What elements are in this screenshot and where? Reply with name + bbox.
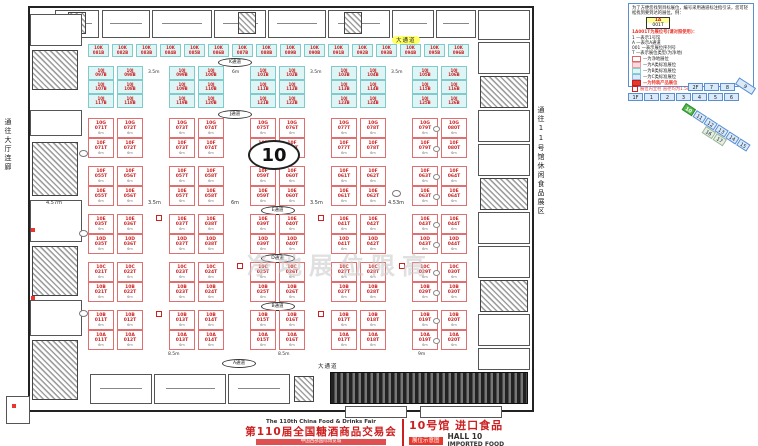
booth-10a015t: 10A015T6m [250,330,276,350]
booth-10d044t: 10D044T6m [441,234,467,254]
booth-10j125b: 10J125B [412,94,438,108]
minimap-hall-8: 8 [720,83,735,91]
booth-10e062t: 10E062T6m [360,186,386,206]
booth-10k091b: 10K091B [328,44,349,57]
structure-room [30,110,82,136]
structure-room [478,212,530,244]
booth-10b029t: 10B029T6m [412,282,438,302]
structure-room [478,144,530,176]
booth-10b024t: 10B024T6m [198,282,224,302]
booth-10k096b: 10K096B [448,44,469,57]
booth-10b017t: 10B017T6m [331,310,357,330]
booth-10d037t: 10D037T6m [169,234,195,254]
booth-10j102b: 10J102B [279,66,305,80]
booth-10g078t: 10G078T6m [360,118,386,138]
structure-room [102,10,150,38]
booth-10e057t: 10E057T6m [169,186,195,206]
net-booth-row: 10G071T6m10G072T6m10G073T6m10G074T6m10G0… [88,118,467,138]
structure-room [6,396,30,424]
aisle-dim: 3.5m [310,200,323,206]
minimap-hall-strip: 101112131415 [682,103,752,152]
main-aisle-label-top: 大通道 [392,36,420,44]
stairs [32,246,78,296]
booth-10f062t: 10F062T6m [360,166,386,186]
booth-10e036t: 10E036T6m [117,214,143,234]
booth-10f058t: 10F058T6m [198,166,224,186]
pillar-ellipse [79,230,88,237]
aisle-row: B通道 [88,302,467,310]
booth-10e038t: 10E038T6m [198,214,224,234]
booth-10f078t: 10F078T6m [360,138,386,158]
booth-10c022t: 10C022T6m [117,262,143,282]
booth-10j105b: 10J105B [412,66,438,80]
booth-10c021t: 10C021T6m [88,262,114,282]
booth-10g079t: 10G079T6m [412,118,438,138]
booth-10c026t: 10C026T6m [279,262,305,282]
legend-color-key: —为净地展位—为A类标准展位—为B类标准展位—为C类标准展位 [632,56,750,80]
hall-title-cn: 10号馆 进口食品 [409,420,504,432]
booth-10e039t: 10E039T6m [250,214,276,234]
booth-10b023t: 10B023T6m [169,282,195,302]
legend-example-booth: 1A 001T [646,17,670,29]
aisle-dim: 6m [232,70,239,75]
booth-10f057t: 10F057T6m [169,166,195,186]
pillar-marker [237,263,243,269]
booth-10b028t: 10B028T6m [360,282,386,302]
booth-10g077t: 10G077T6m [331,118,357,138]
fair-title-en: The 110th China Food & Drinks Fair [245,419,397,426]
booth-10e042t: 10E042T6m [360,214,386,234]
booth-10k089b: 10K089B [280,44,301,57]
booth-10a017t: 10A017T6m [331,330,357,350]
net-booth-row: 10B021T6m10B022T6m10B023T6m10B024T6m10B0… [88,282,467,302]
aisle-dim: 8.5m [168,352,180,357]
booth-10j123b: 10J123B [331,94,357,108]
structure-room [228,374,290,404]
standard-booth-block: 10J097B10J098B10J099B10J100B10J101B10J10… [88,66,467,108]
hall-subtitle-en: IMPORTED FOOD [448,441,505,446]
corridor-label-left: 通往大厅连廊 [3,118,13,172]
structure-room [478,110,530,142]
booth-10d042t: 10D042T6m [360,234,386,254]
structure-room [420,406,502,418]
booth-10b013t: 10B013T6m [169,310,195,330]
booth-10b022t: 10B022T6m [117,282,143,302]
aisle-a: A通道 [222,359,256,368]
booth-10c029t: 10C029T6m [412,262,438,282]
structure-room [30,300,82,336]
hall-number: 10 [248,140,300,170]
booth-10d035t: 10D035T6m [88,234,114,254]
minimap-hall-5: 5 [708,93,723,101]
booth-10b025t: 10B025T6m [250,282,276,302]
booth-10j112b: 10J112B [279,80,305,94]
pillar-marker [318,311,324,317]
booth-10k095b: 10K095B [424,44,445,57]
booth-10c023t: 10C023T6m [169,262,195,282]
layout-badge: 展位示意图 [409,437,443,445]
booth-10f074t: 10F074T6m [198,138,224,158]
booth-10j120b: 10J120B [198,94,224,108]
booth-10b015t: 10B015T6m [250,310,276,330]
booth-10j114b: 10J114B [360,80,386,94]
booth-10j115b: 10J115B [412,80,438,94]
structure-room [90,374,152,404]
booth-10e035t: 10E035T6m [88,214,114,234]
booth-10j121b: 10J121B [250,94,276,108]
minimap-hall-2: 2 [660,93,675,101]
booth-10a014t: 10A014T6m [198,330,224,350]
booth-10k085b: 10K085B [184,44,205,57]
standard-booth-row: 10K081B10K082B10K083B10K084B10K085B10K08… [88,44,469,57]
booth-10e059t: 10E059T6m [250,186,276,206]
booth-10d039t: 10D039T6m [250,234,276,254]
structure-room [478,42,530,74]
booth-10c030t: 10C030T6m [441,262,467,282]
booth-10j111b: 10J111B [250,80,276,94]
booth-10e063t: 10E063T6m [412,186,438,206]
aisle-dim: 3.5m [148,200,161,206]
booth-10k083b: 10K083B [136,44,157,57]
booth-10b021t: 10B021T6m [88,282,114,302]
minimap-hall-2f: 2F [688,83,703,91]
aisle-dim: 3.5m [310,70,322,75]
legend-intro: 为了方便您找到目标展位，编号采用通道标注指引法，您可轻松找到要到达的展位。例： [632,6,750,16]
fair-title-cn: 第110届全国糖酒商品交易会 [245,426,397,438]
stairs [480,280,528,312]
structure-room [30,14,82,46]
aisle-dim: 3.5m [148,70,160,75]
booth-10a020t: 10A020T6m [441,330,467,350]
booth-10e037t: 10E037T6m [169,214,195,234]
booth-10j110b: 10J110B [198,80,224,94]
booth-10c028t: 10C028T6m [360,262,386,282]
minimap-hall-15: 15 [736,138,750,151]
aisle-dim: 4.57m [46,200,62,206]
aisle-dim: 6m [231,200,239,206]
structure-room [478,246,530,278]
hall-title-en: HALL 10 [448,433,505,441]
net-booth-row: 10D035T6m10D036T6m10D037T6m10D038T6m10D0… [88,234,467,254]
booth-10e055t: 10E055T6m [88,186,114,206]
minimap-hall-6: 6 [724,93,739,101]
stairs [480,178,528,210]
booth-10k088b: 10K088B [256,44,277,57]
standard-booth-block-row: 10J107B10J108B10J109B10J110B10J111B10J11… [88,80,467,94]
booth-10c024t: 10C024T6m [198,262,224,282]
title-block: The 110th China Food & Drinks Fair 第110届… [245,419,504,446]
booth-10j109b: 10J109B [169,80,195,94]
minimap-floor2: 2F78 [688,83,736,91]
booth-10f073t: 10F073T6m [169,138,195,158]
stairs [344,12,362,34]
pillar-marker [156,311,162,317]
booth-10b019t: 10B019T6m [412,310,438,330]
aisle-dim: 9m [418,352,425,357]
net-booth-row: 10A011T6m10A012T6m10A013T6m10A014T6m10A0… [88,330,467,350]
structure-room [436,10,476,38]
net-booth-row: 10E035T6m10E036T6m10E037T6m10E038T6m10E0… [88,214,467,234]
booth-10f056t: 10F056T6m [117,166,143,186]
minimap-hall-1: 1 [644,93,659,101]
booth-10d043t: 10D043T6m [412,234,438,254]
booth-10j097b: 10J097B [88,66,114,80]
fire-point-marker [31,228,35,232]
booth-10j099b: 10J099B [169,66,195,80]
booth-10f055t: 10F055T6m [88,166,114,186]
booth-10f072t: 10F072T6m [117,138,143,158]
booth-10k084b: 10K084B [160,44,181,57]
booth-10j106b: 10J106B [441,66,467,80]
booth-10j119b: 10J119B [169,94,195,108]
booth-10g080t: 10G080T6m [441,118,467,138]
stairs [32,50,78,90]
booth-10a012t: 10A012T6m [117,330,143,350]
structure-room [268,10,326,38]
booth-10e040t: 10E040T6m [279,214,305,234]
structure-room [154,374,226,404]
standard-booth-block-row: 10J097B10J098B10J099B10J100B10J101B10J10… [88,66,467,80]
main-aisle-label-bottom: 大通道 [318,362,338,370]
booth-10j118b: 10J118B [117,94,143,108]
booth-10g073t: 10G073T6m [169,118,195,138]
loading-dock [330,372,528,404]
booth-10e064t: 10E064T6m [441,186,467,206]
booth-10j104b: 10J104B [360,66,386,80]
legend-example-bottom: 001T [647,23,669,28]
booth-10j098b: 10J098B [117,66,143,80]
structure-room [478,10,530,40]
booth-10b014t: 10B014T6m [198,310,224,330]
booth-10k081b: 10K081B [88,44,109,57]
net-booth-row: 10C021T6m10C022T6m10C023T6m10C024T6m10C0… [88,262,467,282]
booth-10k082b: 10K082B [112,44,133,57]
booth-10j107b: 10J107B [88,80,114,94]
floor-plan-page: 通往大厅连廊 通往11号馆休闲食品展区 大通道 大通道 10K081B10K08… [0,0,758,446]
booth-10j124b: 10J124B [360,94,386,108]
aisle-row: D通道 [88,254,467,262]
fair-title: The 110th China Food & Drinks Fair 第110届… [245,419,397,446]
minimap-hall-3: 3 [676,93,691,101]
booth-10e061t: 10E061T6m [331,186,357,206]
aisle-dim: 8.5m [278,352,290,357]
booth-10j122b: 10J122B [279,94,305,108]
booth-10j108b: 10J108B [117,80,143,94]
booth-10f071t: 10F071T6m [88,138,114,158]
booth-10f061t: 10F061T6m [331,166,357,186]
stairs [32,340,78,400]
structure-room [345,406,407,418]
aisle-dim: 4.53m [388,200,404,206]
booth-10d038t: 10D038T6m [198,234,224,254]
booth-10c027t: 10C027T6m [331,262,357,282]
booth-10k086b: 10K086B [208,44,229,57]
pillar-marker [318,215,324,221]
booth-10a019t: 10A019T6m [412,330,438,350]
stairs [238,12,256,34]
booth-10b012t: 10B012T6m [117,310,143,330]
legend-items: 1 —表示1号馆A —表示A通道001 —表示展位序列号T —表示展位类型(为净… [632,36,750,57]
booth-10j117b: 10J117B [88,94,114,108]
booth-10e044t: 10E044T6m [441,214,467,234]
booth-10k093b: 10K093B [376,44,397,57]
structure-room [392,10,434,38]
booth-10k087b: 10K087B [232,44,253,57]
minimap-hall-1f: 1F [628,93,643,101]
booth-10a016t: 10A016T6m [279,330,305,350]
booth-10e060t: 10E060T6m [279,186,305,206]
booth-10c025t: 10C025T6m [250,262,276,282]
structure-room [478,348,530,370]
pillar-marker [399,263,405,269]
minimap-floor1: 1F123456 [628,93,740,101]
booth-10j113b: 10J113B [331,80,357,94]
booth-10g071t: 10G071T6m [88,118,114,138]
pillar-ellipse [79,310,88,317]
booth-10j100b: 10J100B [198,66,224,80]
booth-10d040t: 10D040T6m [279,234,305,254]
booth-10j103b: 10J103B [331,66,357,80]
booth-10j101b: 10J101B [250,66,276,80]
booth-10b011t: 10B011T6m [88,310,114,330]
booth-10d036t: 10D036T6m [117,234,143,254]
pillar-swatch [632,86,638,92]
aisle-row: E通道 [88,206,467,214]
booth-10k090b: 10K090B [304,44,325,57]
booth-10g075t: 10G075T6m [250,118,276,138]
structure-room [30,200,82,242]
minimap-hall-7: 7 [704,83,719,91]
pillar-ellipse [392,190,401,197]
structure-room [152,10,212,38]
hall-title: 10号馆 进口食品 展位示意图 HALL 10 IMPORTED FOOD [409,419,504,446]
booth-10j126b: 10J126B [441,94,467,108]
aisle-dim: 3.5m [391,70,403,75]
fair-venue: 中国西部国际博览城 [256,439,386,445]
booth-10b027t: 10B027T6m [331,282,357,302]
minimap-hall-4: 4 [692,93,707,101]
booth-10e041t: 10E041T6m [331,214,357,234]
stairs [480,76,528,108]
booth-10a018t: 10A018T6m [360,330,386,350]
booth-10b016t: 10B016T6m [279,310,305,330]
booth-10k092b: 10K092B [352,44,373,57]
booth-10b020t: 10B020T6m [441,310,467,330]
booth-10f077t: 10F077T6m [331,138,357,158]
stairs [32,142,78,196]
legend: 为了方便您找到目标展位，编号采用通道标注指引法，您可轻松找到要到达的展位。例： … [628,3,754,87]
title-divider [402,419,404,446]
fire-point-marker [12,404,16,408]
booth-10f079t: 10F079T6m [412,138,438,158]
booth-10b026t: 10B026T6m [279,282,305,302]
stairs [294,376,314,402]
net-booth-row: 10B011T6m10B012T6m10B013T6m10B014T6m10B0… [88,310,467,330]
corridor-label-right: 通往11号馆休闲食品展区 [536,106,546,216]
booth-10f080t: 10F080T6m [441,138,467,158]
booth-10d041t: 10D041T6m [331,234,357,254]
booth-10g076t: 10G076T6m [279,118,305,138]
structure-room [478,314,530,346]
booth-10e058t: 10E058T6m [198,186,224,206]
booth-10k094b: 10K094B [400,44,421,57]
booth-10a013t: 10A013T6m [169,330,195,350]
booth-10g072t: 10G072T6m [117,118,143,138]
net-booth-row: 10E055T6m10E056T6m10E057T6m10E058T6m10E0… [88,186,467,206]
booth-10e043t: 10E043T6m [412,214,438,234]
booth-10b030t: 10B030T6m [441,282,467,302]
booth-10b018t: 10B018T6m [360,310,386,330]
booth-10j116b: 10J116B [441,80,467,94]
standard-booth-block-row: 10J117B10J118B10J119B10J120B10J121B10J12… [88,94,467,108]
booth-10e056t: 10E056T6m [117,186,143,206]
booth-10f064t: 10F064T6m [441,166,467,186]
pillar-marker [156,215,162,221]
booth-10a011t: 10A011T6m [88,330,114,350]
pillar-ellipse [79,150,88,157]
booth-10g074t: 10G074T6m [198,118,224,138]
fire-point-marker [31,296,35,300]
booth-10f063t: 10F063T6m [412,166,438,186]
